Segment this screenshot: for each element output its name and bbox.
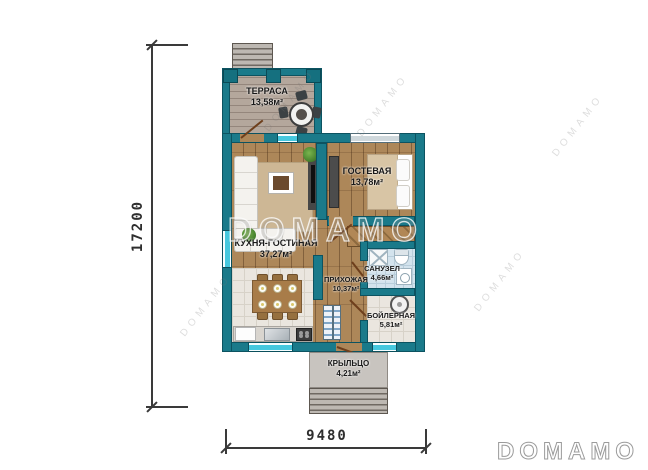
vertical-dimension-line bbox=[151, 45, 153, 408]
tv-icon bbox=[311, 165, 315, 203]
room-name: КРЫЛЬЦО bbox=[311, 359, 386, 369]
domamo-logo: DOMAMO bbox=[492, 438, 644, 466]
room-label-guest: ГОСТЕВАЯ 13,78м² bbox=[334, 166, 400, 189]
room-area: 4,21м² bbox=[311, 369, 386, 379]
room-name: БОЙЛЕРНАЯ bbox=[364, 311, 418, 320]
plate-icon bbox=[288, 300, 297, 309]
terrace-table-center bbox=[296, 109, 307, 120]
toilet-icon bbox=[394, 249, 409, 265]
plate-icon bbox=[288, 284, 297, 293]
room-area: 10,37м² bbox=[323, 284, 369, 293]
room-label-porch: КРЫЛЬЦО 4,21м² bbox=[311, 359, 386, 379]
room-area: 13,78м² bbox=[334, 177, 400, 188]
watermark-diagonal: DOMAMO bbox=[472, 247, 528, 314]
porch-steps bbox=[309, 388, 388, 414]
horizontal-dim-tick-right bbox=[425, 429, 427, 454]
coffee-table-top bbox=[273, 176, 289, 190]
plate-icon bbox=[273, 300, 282, 309]
sink-icon bbox=[264, 328, 290, 341]
wall-partition-living-guest bbox=[316, 143, 327, 220]
boiler-window bbox=[372, 342, 397, 352]
room-label-boiler: БОЙЛЕРНАЯ 5,81м² bbox=[364, 311, 418, 330]
stove-icon bbox=[296, 328, 312, 341]
kitchen-window bbox=[248, 342, 293, 352]
terrace-post bbox=[266, 69, 281, 83]
watermark-diagonal: DOMAMO bbox=[550, 92, 606, 159]
attic-ladder bbox=[323, 305, 341, 340]
fridge-icon bbox=[235, 327, 256, 341]
room-name: ГОСТЕВАЯ bbox=[334, 166, 400, 177]
room-name: САНУЗЕЛ bbox=[361, 264, 403, 273]
height-dimension-label: 17200 bbox=[130, 178, 146, 274]
plate-icon bbox=[258, 284, 267, 293]
plate-icon bbox=[258, 300, 267, 309]
plate-icon bbox=[273, 284, 282, 293]
watermark-diagonal: DOMAMO bbox=[355, 72, 411, 139]
watermark-center: DOMAMO bbox=[228, 211, 422, 249]
wall-kitchen-hall bbox=[313, 255, 323, 300]
room-area: 5,81м² bbox=[364, 320, 418, 329]
floor-plan-canvas: 17200 9480 bbox=[0, 0, 648, 470]
width-dimension-label: 9480 bbox=[286, 428, 368, 444]
horizontal-dim-tick-left bbox=[225, 429, 227, 454]
horizontal-dimension-line bbox=[226, 447, 426, 449]
room-area: 4,66м² bbox=[361, 273, 403, 282]
terrace-window bbox=[277, 133, 298, 143]
room-area: 37,27м² bbox=[232, 249, 320, 260]
room-label-bathroom: САНУЗЕЛ 4,66м² bbox=[361, 264, 403, 283]
terrace-steps bbox=[232, 43, 273, 70]
terrace-post bbox=[223, 69, 238, 83]
